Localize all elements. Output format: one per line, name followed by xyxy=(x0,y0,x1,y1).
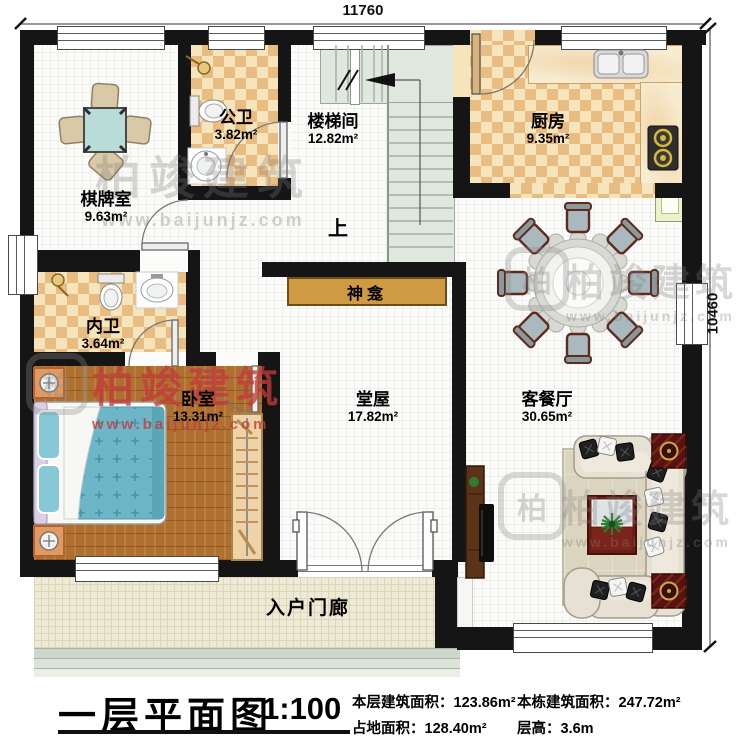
window-gameroom xyxy=(57,26,165,50)
window-bedroom xyxy=(75,556,219,582)
stairs-main-flight xyxy=(388,102,455,264)
kitchen-counter-right xyxy=(640,82,684,188)
title-block: 一层平面图 1:100 本层建筑面积：123.86m² 占地面积：128.40m… xyxy=(0,677,750,744)
living-rug xyxy=(562,448,694,606)
wall-left xyxy=(20,30,34,560)
doorway-gameroom xyxy=(140,250,188,272)
room-label-living-dining: 客餐厅 30.65m² xyxy=(522,390,573,424)
dimension-top: 11760 xyxy=(323,2,403,19)
doorway-kitchen xyxy=(453,45,470,97)
stairs-upper-flight xyxy=(320,45,455,104)
stat-value: 123.86m² xyxy=(454,695,516,711)
stat-value: 3.6m xyxy=(561,721,594,737)
room-area: 3.64m² xyxy=(82,337,125,352)
dimension-right: 10460 xyxy=(704,293,721,335)
room-label-entry-porch: 入户门廊 xyxy=(266,593,350,620)
room-name: 客餐厅 xyxy=(522,390,573,410)
doorway-bathpub xyxy=(278,122,291,178)
room-area: 30.65m² xyxy=(522,410,573,425)
watermark-logo-glyph: 柏 xyxy=(43,364,71,404)
wall-bedroom-right xyxy=(262,362,280,560)
wall-hall-bottom-right xyxy=(432,560,458,577)
doorway-kitchen-dining xyxy=(510,183,655,198)
room-area: 9.63m² xyxy=(81,210,132,225)
window-bathpub xyxy=(208,26,265,50)
wall-bathpub-bottom xyxy=(178,186,290,200)
doorway-bedroom xyxy=(216,352,258,366)
stat-land-area: 占地面积：128.40m² xyxy=(352,717,487,738)
room-name: 楼梯间 xyxy=(308,112,359,132)
porch-steps xyxy=(34,648,460,678)
stat-value: 247.72m² xyxy=(619,695,681,711)
room-name: 卧室 xyxy=(173,390,223,410)
window-living xyxy=(513,623,653,653)
watermark-logo: 柏 xyxy=(26,353,88,415)
room-area: 13.31m² xyxy=(173,410,223,425)
room-area: 12.82m² xyxy=(308,132,359,147)
wall-bathpriv-right xyxy=(186,250,200,366)
wall-porch-divider xyxy=(435,577,457,648)
stat-label: 本层建筑面积： xyxy=(352,695,454,711)
stairs-up-label: 上 xyxy=(328,212,348,241)
stat-label: 占地面积： xyxy=(352,721,425,737)
room-area: 9.35m² xyxy=(527,132,570,147)
room-label-stairwell: 楼梯间 12.82m² xyxy=(308,112,359,146)
room-label-public-bath: 公卫 3.82m² xyxy=(215,108,258,142)
kitchen-counter-top xyxy=(528,45,684,84)
entry-door-sill xyxy=(298,560,432,577)
wall-gameroom-bottom-left xyxy=(20,250,140,272)
stat-label: 本栋建筑面积： xyxy=(517,695,619,711)
window-stairs xyxy=(313,26,425,50)
wall-kitchen-bottom-right xyxy=(655,183,682,198)
title-underline xyxy=(58,730,350,734)
stat-floor-area: 本层建筑面积：123.86m² xyxy=(352,691,516,712)
stat-building-area: 本栋建筑面积：247.72m² xyxy=(517,691,681,712)
room-label-main-hall: 堂屋 17.82m² xyxy=(348,390,398,424)
wall-stairs-bottom xyxy=(262,262,455,277)
window-kitchen xyxy=(561,26,667,50)
room-label-bedroom: 卧室 13.31m² xyxy=(173,390,223,424)
room-label-game-room: 棋牌室 9.63m² xyxy=(81,190,132,224)
room-name: 公卫 xyxy=(215,108,258,128)
stat-value: 128.40m² xyxy=(425,721,487,737)
room-label-kitchen: 厨房 9.35m² xyxy=(527,112,570,146)
porch-floor xyxy=(34,577,435,648)
watermark-logo: 柏 xyxy=(498,472,566,540)
floor-plan: 神龛 xyxy=(0,0,750,744)
doorway-bathpriv xyxy=(125,352,186,366)
stat-floor-height: 层高：3.6m xyxy=(517,717,594,738)
kitchen-door-bay xyxy=(470,30,535,45)
wall-kitchen-bottom-left xyxy=(453,183,510,198)
window-dining xyxy=(676,283,708,345)
room-label-private-bath: 内卫 3.64m² xyxy=(82,317,125,351)
shrine-label: 神龛 xyxy=(347,280,387,304)
watermark-logo-glyph: 柏 xyxy=(522,257,552,301)
window-bathpriv xyxy=(8,235,38,295)
stat-label: 层高： xyxy=(517,721,561,737)
room-name: 棋牌室 xyxy=(81,190,132,210)
plan-scale: 1:100 xyxy=(262,691,341,727)
room-area: 17.82m² xyxy=(348,410,398,425)
wall-bedroom-top-left xyxy=(186,352,216,366)
room-name: 内卫 xyxy=(82,317,125,337)
watermark-logo: 柏 xyxy=(505,247,569,311)
room-name: 堂屋 xyxy=(348,390,398,410)
room-area: 3.82m² xyxy=(215,128,258,143)
wall-hall-living-divider xyxy=(452,262,466,562)
wall-bathpub-right-upper xyxy=(278,45,291,122)
shrine-shelf: 神龛 xyxy=(287,277,447,306)
watermark-logo-glyph: 柏 xyxy=(517,484,547,528)
wall-gameroom-right xyxy=(178,45,191,200)
room-name: 厨房 xyxy=(527,112,570,132)
stairs-rail xyxy=(350,45,360,105)
